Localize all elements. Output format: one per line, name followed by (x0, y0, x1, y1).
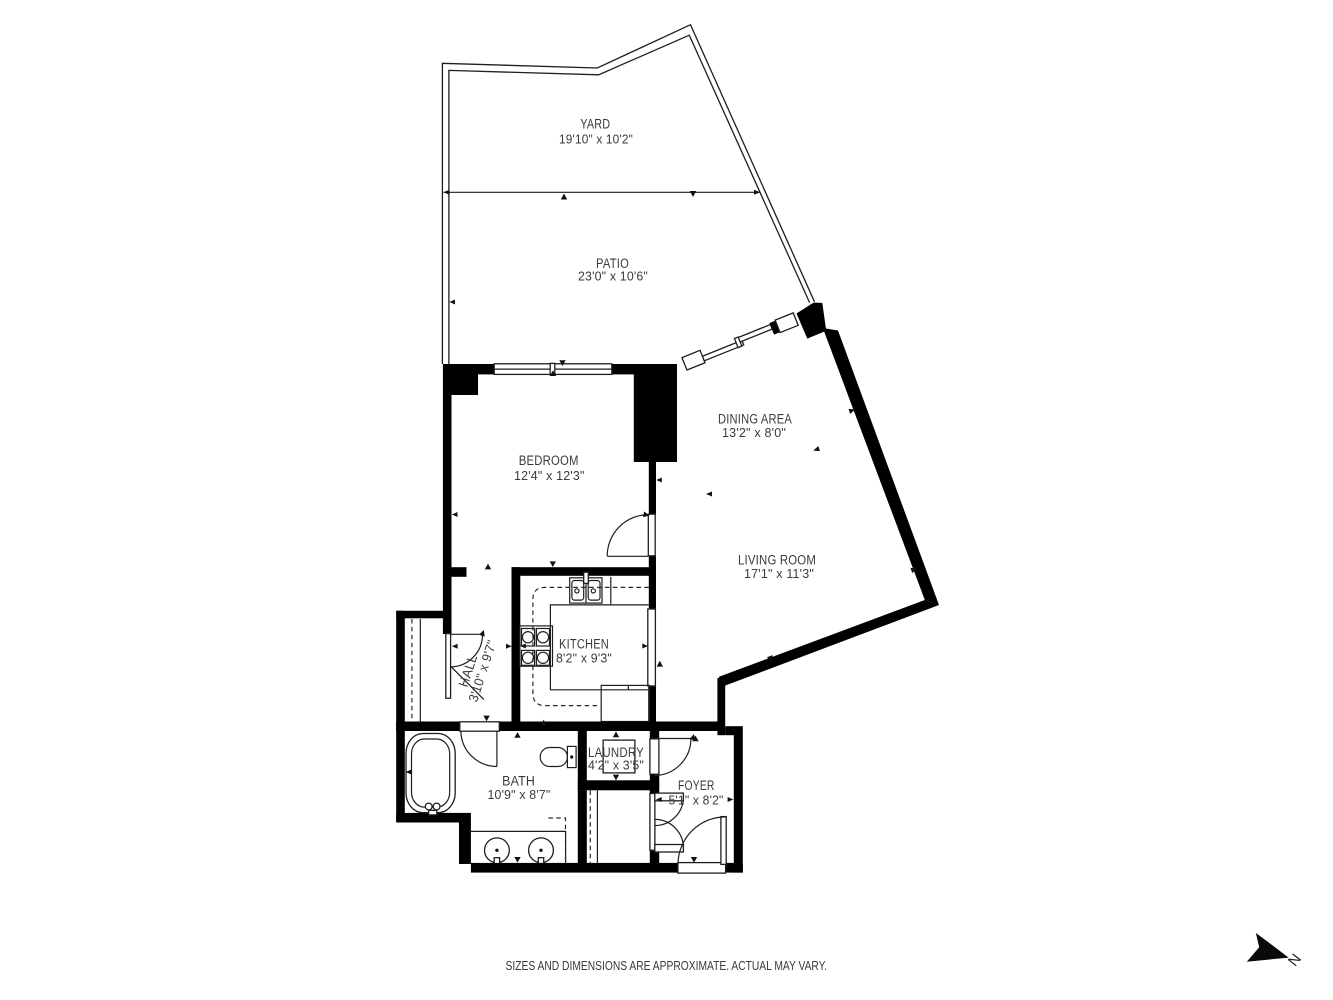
svg-text:BEDROOM: BEDROOM (519, 453, 579, 468)
svg-text:13'2" x 8'0": 13'2" x 8'0" (722, 425, 786, 440)
svg-text:4'2" x 3'5": 4'2" x 3'5" (588, 757, 644, 772)
svg-text:KITCHEN: KITCHEN (559, 636, 609, 651)
svg-text:YARD: YARD (580, 117, 610, 132)
svg-text:8'2" x 9'3": 8'2" x 9'3" (556, 650, 612, 665)
svg-text:5'1" x 8'2": 5'1" x 8'2" (669, 792, 724, 807)
svg-text:17'1" x 11'3": 17'1" x 11'3" (744, 566, 814, 581)
svg-text:FOYER: FOYER (678, 778, 715, 793)
svg-text:SIZES AND DIMENSIONS ARE APPRO: SIZES AND DIMENSIONS ARE APPROXIMATE. AC… (506, 958, 828, 973)
svg-text:12'4" x 12'3": 12'4" x 12'3" (514, 468, 585, 483)
svg-text:23'0" x 10'6": 23'0" x 10'6" (578, 268, 648, 283)
svg-text:10'9" x 8'7": 10'9" x 8'7" (488, 787, 551, 802)
svg-text:19'10" x 10'2": 19'10" x 10'2" (559, 132, 633, 147)
